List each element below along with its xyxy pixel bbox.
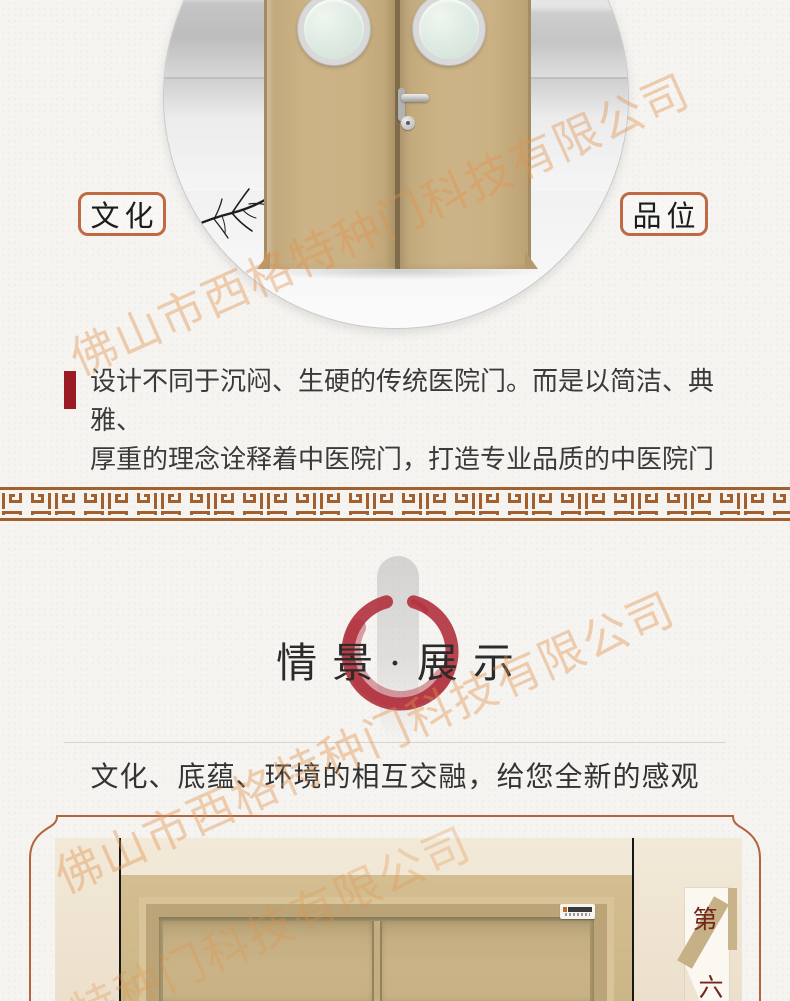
showcase-door-left-leaf (163, 921, 377, 1001)
badge-fold-strip (728, 888, 737, 950)
description-line-2: 厚重的理念诠释着中医院门，打造专业品质的中医院门 (90, 440, 742, 479)
hero-door-photo (163, 0, 629, 329)
brand-plate-text-row (565, 913, 590, 916)
brand-plate-logo-row (563, 907, 592, 912)
showcase-door-right-leaf (377, 921, 591, 1001)
section-title: 情景·展示 (0, 629, 790, 689)
door-center-gap (372, 921, 382, 1001)
wall-edge-line-right (632, 838, 634, 1001)
double-door (264, 0, 531, 269)
red-accent-bar (64, 371, 76, 409)
showcase-door-photo: 第 六 (55, 838, 742, 1001)
door-handle (401, 94, 429, 102)
door-opening (159, 917, 594, 1001)
door-frame-molding-inner (146, 904, 607, 1001)
badge-char-top: 第 (683, 900, 727, 936)
culture-label-box: 文化 (78, 192, 166, 236)
brand-plate (560, 904, 595, 919)
section-divider (64, 742, 726, 743)
mountain-silhouette-right (516, 10, 628, 80)
promo-page: 佛山市西格特种门科技有限公司 佛山市西格特种门科技有限公司 佛山市西格特种门科技… (0, 0, 790, 1001)
section-subtitle: 文化、底蕴、环境的相互交融，给您全新的感观 (0, 755, 790, 795)
door-lock (401, 116, 415, 130)
taste-label-box: 品位 (620, 192, 708, 236)
meander-border (0, 487, 790, 521)
description-line-1: 设计不同于沉闷、生硬的传统医院门。而是以简洁、典雅、 (90, 362, 742, 440)
hero-description: 设计不同于沉闷、生硬的传统医院门。而是以简洁、典雅、 厚重的理念诠释着中医院门，… (90, 362, 742, 479)
series-badge-banner: 第 六 (685, 888, 729, 1001)
door-frame-molding (139, 897, 614, 1001)
showcase-double-door (163, 921, 590, 1001)
badge-char-bottom: 六 (689, 968, 733, 1001)
